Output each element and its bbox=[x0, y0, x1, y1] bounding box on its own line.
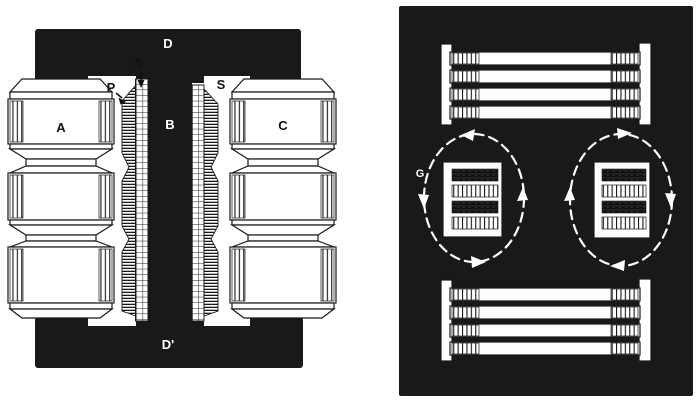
yoke-notch-bottom-right bbox=[204, 317, 250, 326]
label-secondary-right: S bbox=[217, 77, 226, 92]
stack-bar bbox=[450, 52, 640, 65]
stack-bar bbox=[450, 306, 640, 319]
coil-c bbox=[230, 79, 336, 318]
stack-bar bbox=[450, 70, 640, 83]
figure-right-leakage-flux: G bbox=[399, 6, 693, 396]
engraving-plate: D B D' A C S P S bbox=[0, 0, 700, 406]
stack-end-plate-right bbox=[639, 43, 651, 125]
label-coil-c: C bbox=[278, 118, 288, 133]
label-top-yoke: D bbox=[163, 36, 172, 51]
winding-ladder-right bbox=[192, 85, 204, 321]
stack-end-plate-right bbox=[639, 279, 651, 361]
center-core-leg bbox=[148, 70, 193, 325]
coil-a bbox=[8, 79, 114, 318]
stack-bar bbox=[450, 342, 640, 355]
coil-block-left bbox=[443, 162, 502, 237]
engraving-canvas: D B D' A C S P S bbox=[0, 0, 700, 406]
stack-bar bbox=[450, 324, 640, 337]
label-center-leg: B bbox=[165, 117, 174, 132]
coil-block-right bbox=[594, 162, 650, 238]
stack-bar bbox=[450, 88, 640, 101]
label-secondary-top: S bbox=[135, 55, 144, 70]
label-leakage-gap: G bbox=[416, 168, 425, 180]
stack-bar bbox=[450, 106, 640, 119]
stack-bar bbox=[450, 288, 640, 301]
label-bottom-yoke: D' bbox=[162, 337, 174, 352]
label-primary: P bbox=[107, 80, 116, 95]
winding-ladder-left bbox=[136, 79, 149, 321]
secondary-winding-hatch-right bbox=[204, 89, 218, 316]
figure-left-transformer-section: D B D' A C S P S bbox=[8, 29, 336, 368]
label-coil-a: A bbox=[56, 120, 66, 135]
primary-winding-hatch-left bbox=[122, 85, 136, 316]
